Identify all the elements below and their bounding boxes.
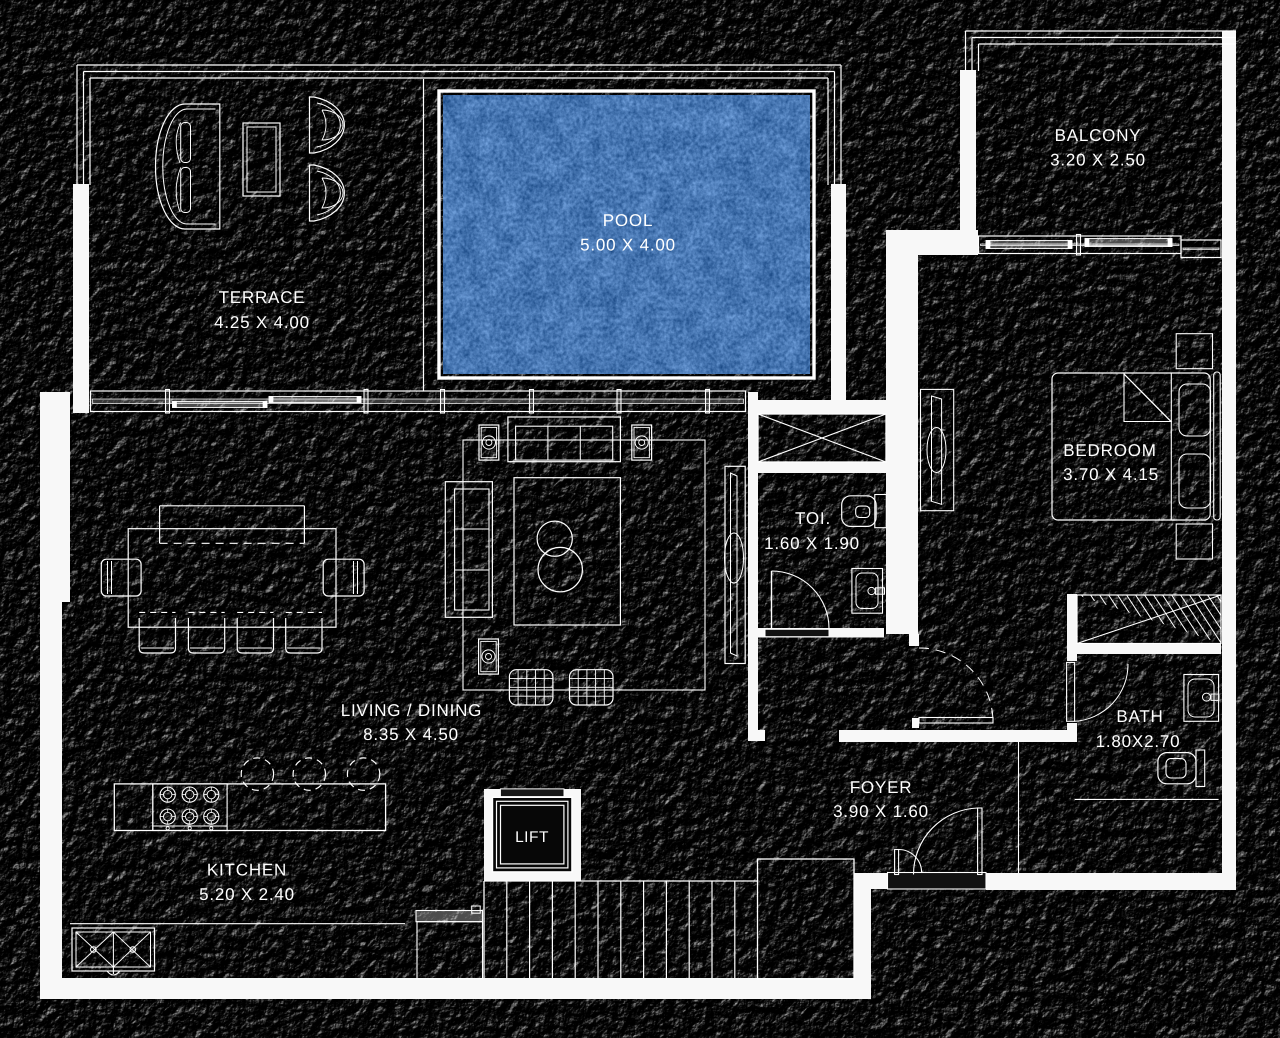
svg-text:3.90 X 1.60: 3.90 X 1.60 xyxy=(833,802,929,821)
svg-text:5.00 X 4.00: 5.00 X 4.00 xyxy=(580,236,676,255)
svg-text:KITCHEN: KITCHEN xyxy=(207,861,287,880)
svg-text:BEDROOM: BEDROOM xyxy=(1063,441,1156,460)
svg-text:BALCONY: BALCONY xyxy=(1055,126,1142,145)
svg-text:3.70 X 4.15: 3.70 X 4.15 xyxy=(1063,465,1159,484)
svg-text:FOYER: FOYER xyxy=(850,778,913,797)
svg-text:TERRACE: TERRACE xyxy=(219,288,306,307)
svg-text:LIVING / DINING: LIVING / DINING xyxy=(341,701,482,720)
svg-text:1.60 X 1.90: 1.60 X 1.90 xyxy=(764,534,860,553)
svg-text:4.25 X 4.00: 4.25 X 4.00 xyxy=(214,313,310,332)
svg-text:5.20 X 2.40: 5.20 X 2.40 xyxy=(199,885,295,904)
svg-text:3.20 X 2.50: 3.20 X 2.50 xyxy=(1050,151,1146,170)
svg-text:POOL: POOL xyxy=(603,211,653,230)
svg-text:LIFT: LIFT xyxy=(515,829,549,846)
svg-text:BATH: BATH xyxy=(1116,707,1163,726)
svg-text:1.80X2.70: 1.80X2.70 xyxy=(1096,732,1181,751)
svg-text:8.35 X 4.50: 8.35 X 4.50 xyxy=(363,725,459,744)
svg-text:TOI.: TOI. xyxy=(795,509,831,528)
